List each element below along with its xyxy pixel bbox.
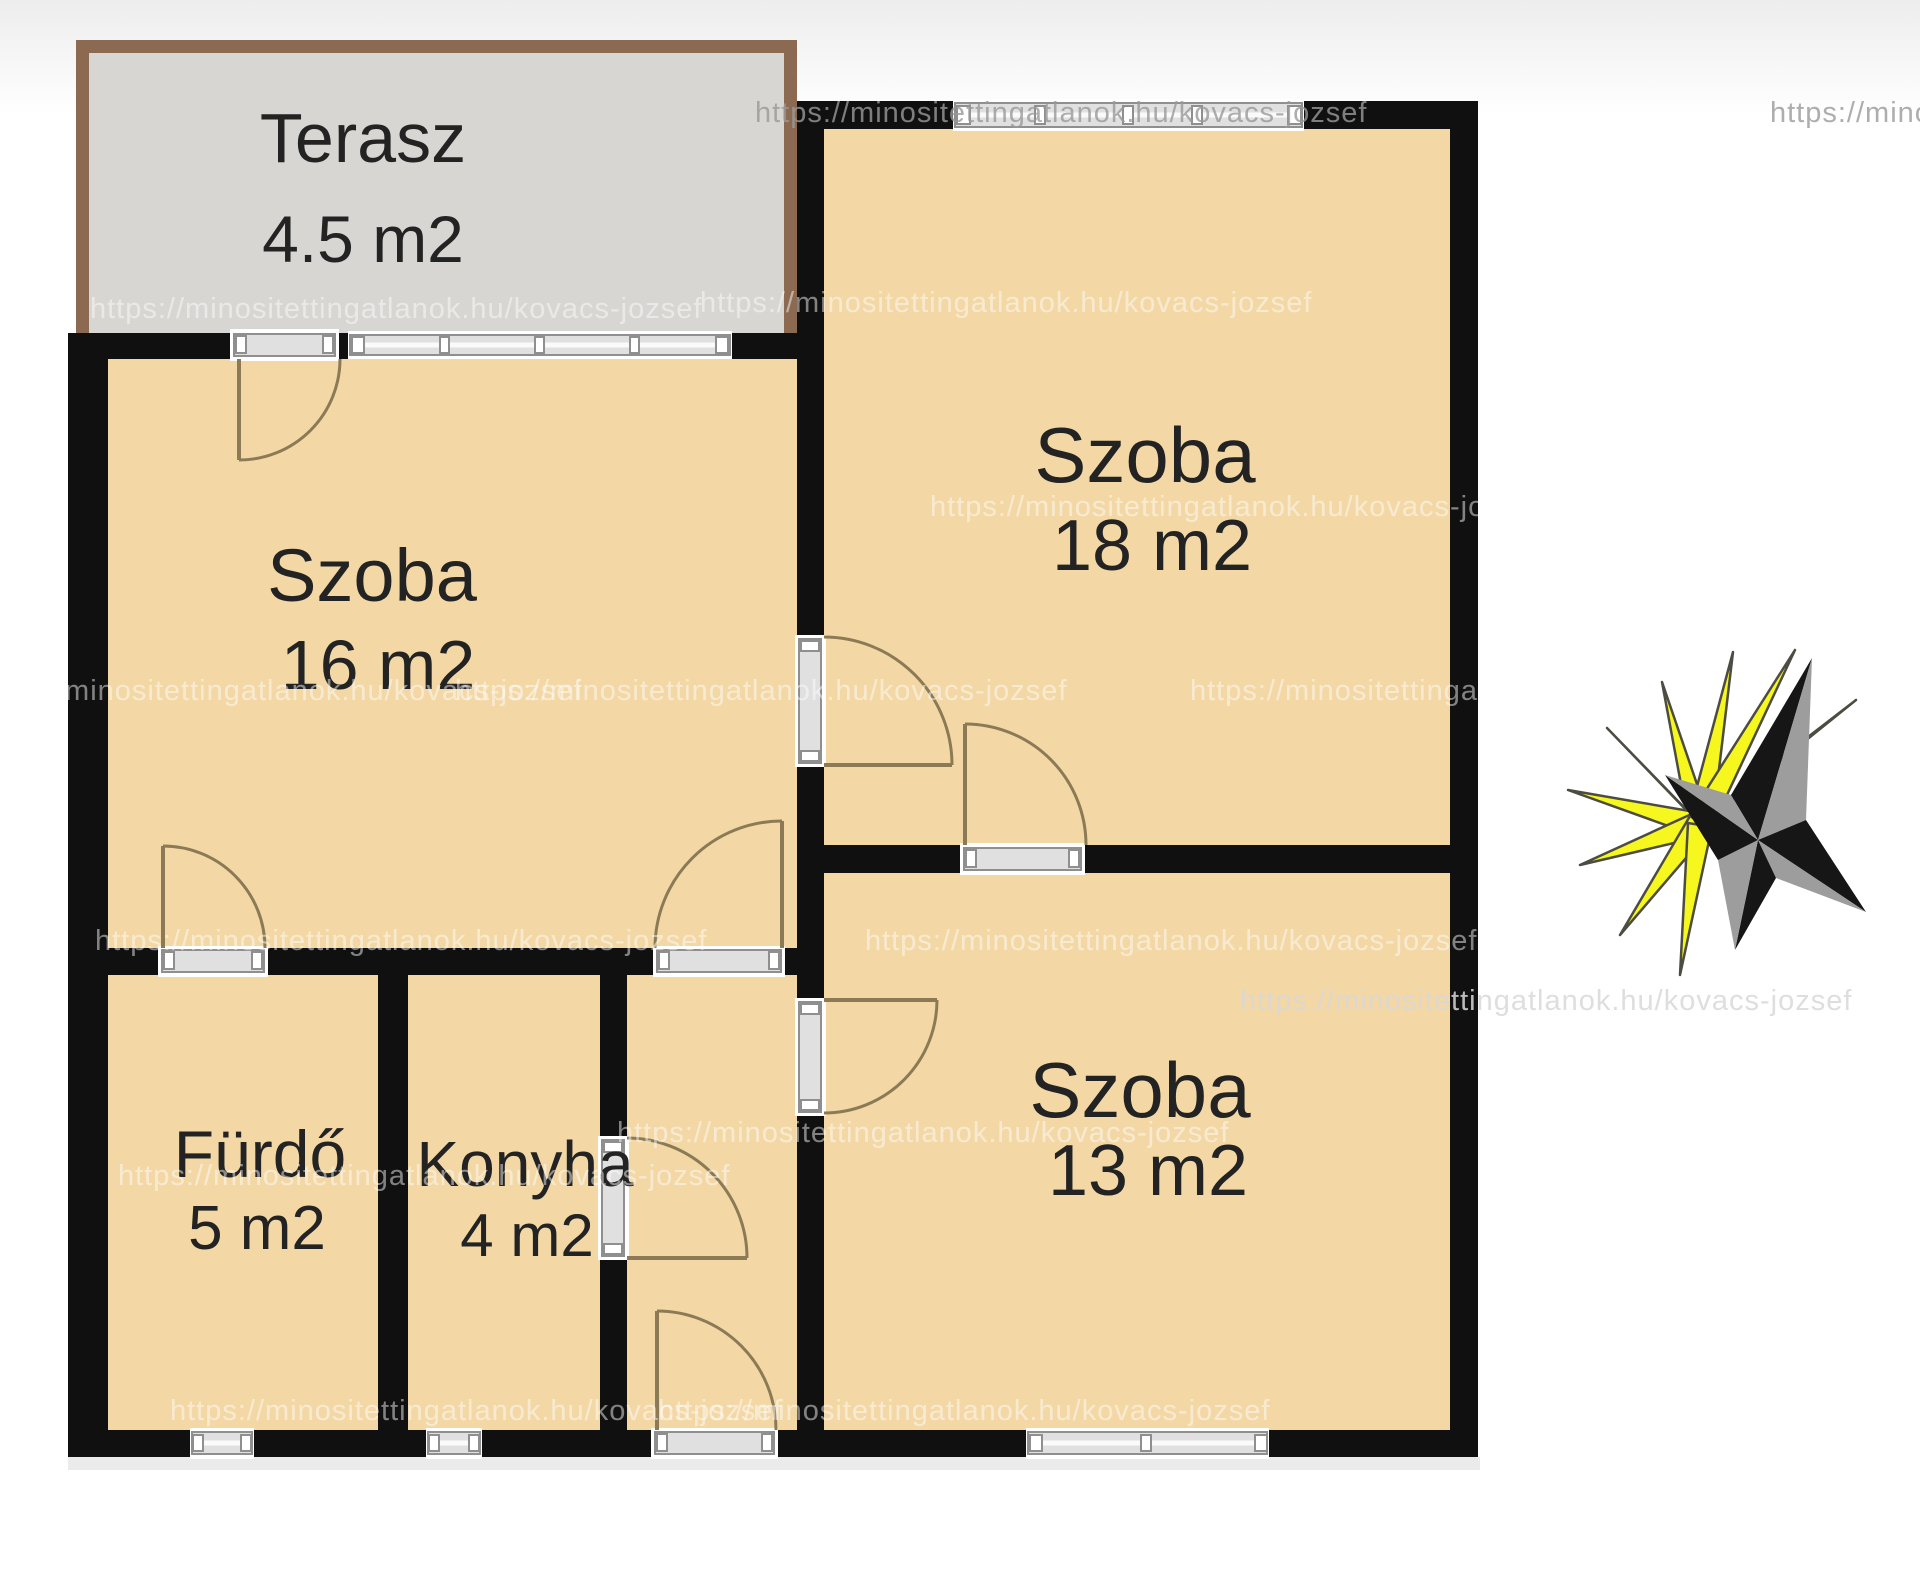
watermark-text: https://minositettingatlanok.hu/kovacs-j… <box>865 925 1477 957</box>
watermark-text: https://minositettingatlanok.hu/kovacs-j… <box>90 293 702 325</box>
watermark-text: https://minositettingatlanok.hu/kovacs-j… <box>95 925 707 957</box>
window-szoba13-bottom <box>1026 1428 1269 1459</box>
watermark-text: https://minositettingatlanok.hu/kovacs-j… <box>118 1160 730 1192</box>
wall-outer-left <box>68 333 108 1457</box>
wall-central <box>797 101 824 975</box>
label-terasz-name: Terasz <box>260 99 466 177</box>
watermark-text: https://minositettingatlanok.hu/kovacs-j… <box>1190 675 1802 707</box>
window-konyha-bottom <box>426 1428 482 1459</box>
label-konyha-area: 4 m2 <box>460 1202 593 1269</box>
watermark-text: https://minositettingatlanok.hu/kovacs-j… <box>755 97 1367 129</box>
label-szoba16-name: Szoba <box>267 534 478 617</box>
floor-plan-canvas: Terasz 4.5 m2 Szoba 16 m2 Szoba 18 m2 Sz… <box>0 0 1920 1596</box>
window-terrace <box>348 331 732 359</box>
watermark-text: https://minositettingatlanok.hu/kovacs-j… <box>455 675 1067 707</box>
wall-furdo-konyha <box>378 975 408 1430</box>
terrace-floor <box>89 53 784 333</box>
watermark-text: https://minositettingatlanok.hu/kovacs-j… <box>1240 985 1852 1017</box>
label-furdo-area: 5 m2 <box>188 1194 326 1263</box>
room-hall-floor <box>627 975 797 1430</box>
watermark-text: https://minositettingatlanok.hu/kovacs-j… <box>1770 97 1920 129</box>
label-szoba18-name: Szoba <box>1034 411 1256 499</box>
watermark-text: https://minositettingatlanok.hu/kovacs-j… <box>930 491 1542 523</box>
watermark-text: https://minositettingatlanok.hu/kovacs-j… <box>700 287 1312 319</box>
terrace-border-top <box>76 40 797 53</box>
terrace-border-left <box>76 40 89 333</box>
watermark-text: https://minositettingatlanok.hu/kovacs-j… <box>658 1395 1270 1427</box>
wall-outer-right <box>1450 101 1478 1457</box>
window-furdo-bottom <box>190 1428 254 1459</box>
room-terrace <box>76 40 797 333</box>
watermark-text: https://minositettingatlanok.hu/kovacs-j… <box>617 1117 1229 1149</box>
floor-plan-page: Terasz 4.5 m2 Szoba 16 m2 Szoba 18 m2 Sz… <box>0 0 1920 1596</box>
wall-szoba18-szoba13 <box>824 845 1450 873</box>
label-terasz-area: 4.5 m2 <box>262 202 464 276</box>
